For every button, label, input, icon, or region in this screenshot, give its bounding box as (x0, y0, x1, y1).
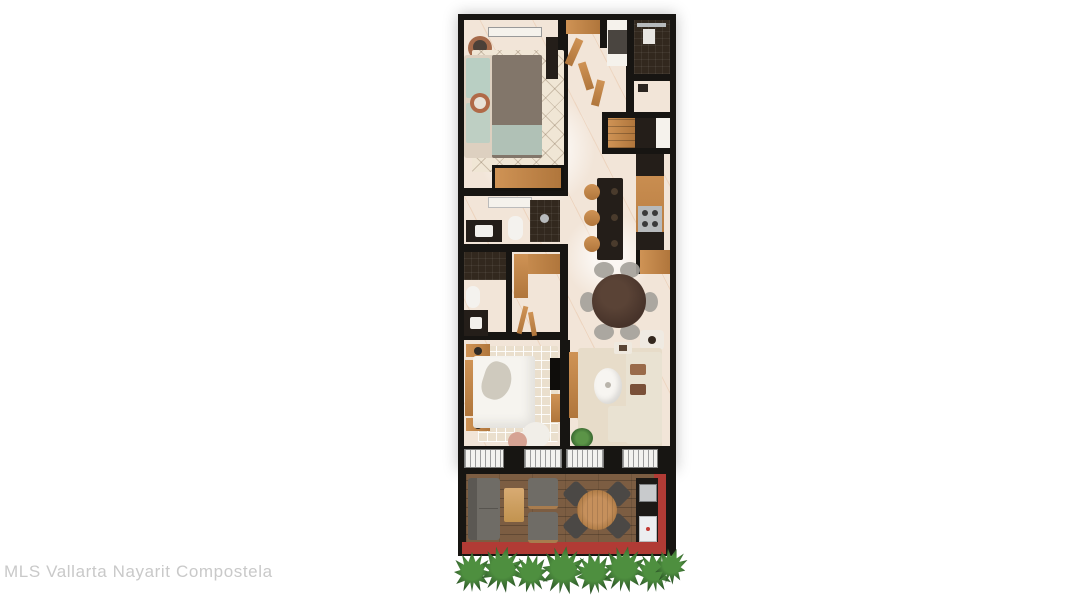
master-bed (464, 55, 542, 158)
outdoor-side-table (504, 488, 524, 522)
burner-4 (652, 221, 658, 227)
shower-room (634, 20, 670, 74)
bath1-toilet (508, 216, 523, 240)
linen-shelves (608, 118, 635, 148)
outdoor-armchair-2 (528, 512, 558, 543)
dining-table (592, 274, 646, 328)
wardrobe-side (514, 254, 528, 298)
linen-alcove (656, 118, 670, 148)
outdoor-sofa-back (468, 478, 477, 540)
lamp-top (474, 347, 482, 355)
island-dot-1 (611, 188, 618, 195)
kitchen-tall-cabinet (636, 250, 670, 274)
sofa-pillow-2 (630, 384, 646, 395)
bedroom2-tv (550, 358, 560, 390)
tv-console (569, 352, 578, 418)
sofa-cushion-seam (479, 508, 498, 509)
bed-tray-top (474, 97, 486, 109)
accent-chair (640, 330, 664, 350)
guest-bed-blanket (478, 359, 516, 404)
wall-shower-south (634, 74, 670, 81)
bar-stool-1 (584, 184, 600, 200)
refrigerator (636, 232, 664, 250)
sectional-sofa (626, 352, 662, 444)
wall-closet-dining (560, 244, 568, 340)
terrace (458, 470, 676, 556)
shower-bar (637, 23, 666, 27)
wall-bath-divider (458, 244, 568, 252)
bar-stool-2 (584, 210, 600, 226)
bar-stool-3 (584, 236, 600, 252)
pillow-1 (466, 58, 490, 98)
bath2-vanity (464, 310, 488, 336)
accent-chair-pillow (648, 336, 656, 344)
sliding-door-4 (622, 449, 658, 468)
bath2-sink (470, 317, 482, 329)
burner-2 (652, 210, 658, 216)
terrace-table (577, 490, 617, 530)
bath2-shower (464, 252, 506, 280)
bed2-headboard (465, 360, 473, 416)
grill (639, 484, 657, 502)
sofa-side-table (614, 342, 632, 354)
sliding-door-1 (464, 449, 504, 468)
sliding-door-2 (524, 449, 562, 468)
bed-tray (470, 93, 490, 113)
bath1-sink (475, 225, 493, 237)
master-bed-throw (492, 125, 542, 155)
island-dot-3 (611, 240, 618, 247)
bath1-vanity (466, 220, 502, 242)
wall-shower-left (626, 20, 634, 118)
guest-bed (473, 356, 535, 428)
watermark-text: MLS Vallarta Nayarit Compostela (4, 562, 273, 582)
linen-dark-cabinet (635, 118, 656, 148)
shower-towel (643, 29, 655, 44)
grill-station (636, 478, 658, 542)
floor-plan (458, 14, 676, 592)
cooler-logo (646, 527, 650, 531)
bath1-shelf (488, 197, 532, 208)
kitchen-island (597, 178, 623, 260)
kitchen-counter-dark-top (636, 154, 664, 176)
wc-fixture (638, 84, 648, 92)
sliding-door-wall (458, 446, 676, 470)
apartment-outline (458, 14, 676, 470)
bedroom-bench (492, 165, 564, 191)
sliding-door-3 (566, 449, 604, 468)
ac-vent (488, 27, 542, 37)
stove (638, 206, 662, 232)
entry-cabinet (608, 30, 627, 54)
coffee-table (594, 368, 622, 404)
ladder-shelf (551, 394, 560, 422)
burner-1 (642, 210, 648, 216)
hall-closet (566, 20, 600, 34)
bath1-shower (530, 200, 560, 242)
wall-entry (600, 20, 607, 48)
bedroom-wardrobe (546, 37, 558, 79)
burner-3 (642, 221, 648, 227)
indoor-plant (571, 428, 593, 448)
bath2-toilet (466, 286, 480, 308)
side-table-book (619, 345, 627, 351)
plant-1 (454, 552, 490, 592)
sofa-pillow-1 (630, 364, 646, 375)
coffee-table-decor (605, 382, 611, 388)
sofa-chaise (608, 406, 630, 442)
bath1-shower-head (540, 214, 549, 223)
outdoor-armchair-1 (528, 478, 558, 509)
island-dot-2 (611, 214, 618, 221)
outdoor-sofa (468, 478, 500, 540)
wall-bath-closet (506, 252, 512, 338)
cooler (639, 516, 657, 542)
